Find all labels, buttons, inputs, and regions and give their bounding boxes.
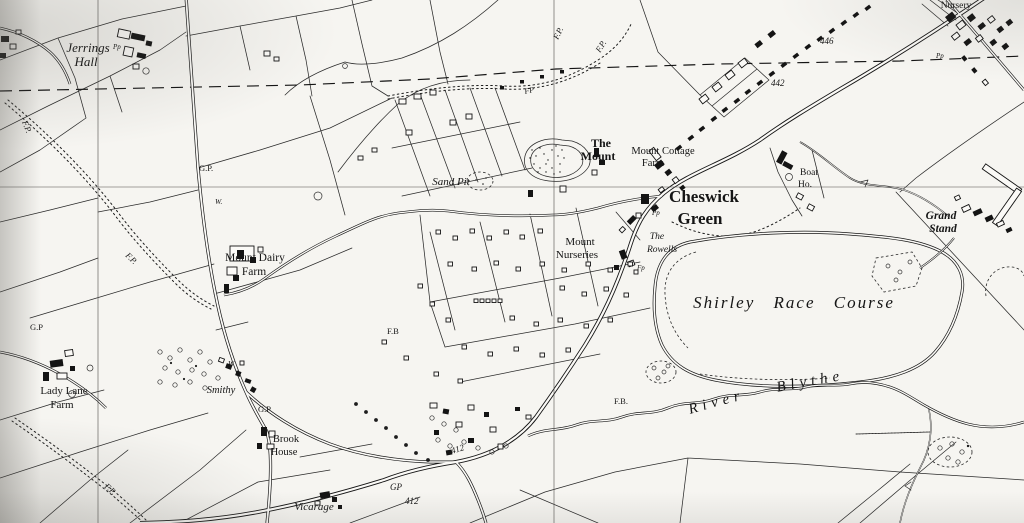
well-marker: W. xyxy=(215,197,223,206)
jerrings-hall-label-line1: Jerrings xyxy=(66,40,109,55)
nursery-label: Nursery xyxy=(941,1,972,11)
guide-post-marker-left: G.P xyxy=(30,322,43,332)
boat-house-label-line1: Boat xyxy=(800,168,818,178)
boat-house-label-line2: Ho. xyxy=(798,180,812,190)
footbridge-marker-mid: F.B xyxy=(387,326,399,336)
grand-stand-label-line1: Grand xyxy=(926,210,957,222)
parish-boundary-line xyxy=(0,56,1024,91)
pit-southeast xyxy=(856,432,972,467)
grand-stand-label-line2: Stand xyxy=(929,223,957,235)
footpath-marker-top3: FP xyxy=(523,85,536,96)
pump-marker: Pp xyxy=(112,43,121,51)
the-rowells-label-line1: The xyxy=(650,232,664,242)
cheswick-green-label-line2: Green xyxy=(677,209,723,228)
pump-marker-topright: Pp xyxy=(935,52,944,60)
guide-post-marker-junction: GP xyxy=(390,482,402,492)
racecourse-corner-trees xyxy=(646,361,676,383)
vicarage-label: Vicarage xyxy=(294,501,334,513)
mount-dairy-farm-label-line2: Farm xyxy=(242,266,266,278)
guide-post-marker: G.P. xyxy=(199,163,213,173)
river-blythe-label: River Blythe xyxy=(686,368,846,418)
footpath-marker-top2: F.P. xyxy=(593,38,609,55)
smithy-label: Smithy xyxy=(207,385,236,396)
shirley-race-course-label: Shirley Race Course xyxy=(693,293,895,312)
lady-lane-farm-buildings xyxy=(43,349,75,381)
well-marker-mid: W xyxy=(228,359,235,368)
mount-cottage-farm-label-line1: Mount Cottage xyxy=(631,146,695,157)
map-canvas[interactable]: Jerrings Hall Pp F.P. G.P. W. Sand Pit T… xyxy=(0,0,1024,523)
guide-post-marker-smithy: G.P xyxy=(258,404,271,414)
sand-pit-label: Sand Pit xyxy=(432,176,471,188)
brook-house-label-line2: House xyxy=(271,447,298,458)
footpath-marker-top1: F.P. xyxy=(550,25,565,41)
cheswick-green-label-line1: Cheswick xyxy=(669,187,739,206)
the-rowells-label-line2: Rowells xyxy=(646,245,677,255)
fp-marker-rowells: Fp xyxy=(636,264,645,272)
spot-height-446: 446 xyxy=(820,36,834,46)
nursery-buildings-topright xyxy=(945,12,1013,86)
enclosure-trees xyxy=(886,260,912,282)
the-mount-label-line1: The xyxy=(591,136,612,150)
pump-marker-cheswick: Pp xyxy=(651,209,660,217)
footpaths xyxy=(5,22,800,523)
spot-height-442: 442 xyxy=(771,78,785,88)
footpath-marker-bottomleft: F.P. xyxy=(102,480,119,496)
map-image: Jerrings Hall Pp F.P. G.P. W. Sand Pit T… xyxy=(0,0,1024,523)
brook-house-label-line1: Brook xyxy=(273,434,300,445)
mount-nurseries-label-line1: Mount xyxy=(565,236,594,248)
the-mount-label-line2: Mount xyxy=(581,149,616,163)
mount-dairy-farm-label-line1: Mount Dairy xyxy=(225,252,285,264)
footbridge-marker-river: F.B. xyxy=(614,396,628,406)
tree-features xyxy=(69,64,1024,467)
mount-cottage-farm-label-line2: Farm xyxy=(642,158,664,169)
grand-stand-buildings xyxy=(954,164,1021,233)
smithy-woodland xyxy=(158,348,220,390)
mount-nurseries-label-line2: Nurseries xyxy=(556,249,598,261)
jerrings-hall-label-line2: Hall xyxy=(73,54,98,69)
footpath-marker: F.P. xyxy=(20,118,34,134)
labels: Jerrings Hall Pp F.P. G.P. W. Sand Pit T… xyxy=(20,1,972,513)
lady-lane-farm-label-line2: Farm xyxy=(50,399,74,411)
footpath-marker-midleft: F.P. xyxy=(123,250,140,267)
tree-ring-horseshoe xyxy=(986,267,1024,296)
lady-lane-farm-label-line1: Lady Lane xyxy=(40,385,87,397)
spot-height-412-b: 412 xyxy=(405,496,419,506)
